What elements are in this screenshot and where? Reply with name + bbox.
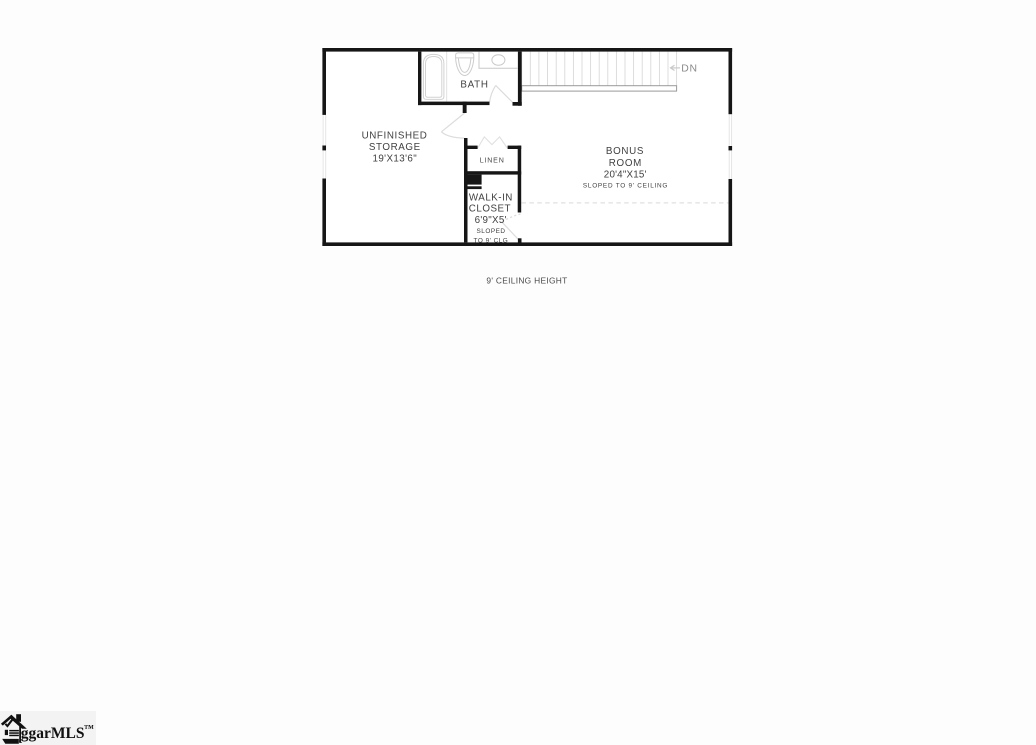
svg-text:WALK-IN: WALK-IN bbox=[469, 192, 513, 203]
svg-text:TO 9' CLG: TO 9' CLG bbox=[474, 237, 509, 244]
svg-text:BONUS: BONUS bbox=[606, 146, 644, 157]
svg-text:LINEN: LINEN bbox=[480, 156, 505, 164]
svg-text:CLOSET: CLOSET bbox=[469, 204, 511, 215]
svg-text:ggarMLS: ggarMLS bbox=[21, 725, 85, 742]
svg-text:DN: DN bbox=[681, 64, 697, 75]
svg-text:SLOPED TO 9' CEILING: SLOPED TO 9' CEILING bbox=[583, 183, 668, 190]
svg-text:6'9"X5': 6'9"X5' bbox=[475, 215, 507, 226]
svg-text:19'X13'6": 19'X13'6" bbox=[372, 153, 417, 164]
svg-text:SLOPED: SLOPED bbox=[477, 228, 506, 235]
svg-text:20'4"X15': 20'4"X15' bbox=[604, 170, 647, 181]
svg-text:STORAGE: STORAGE bbox=[369, 142, 421, 153]
svg-text:9' CEILING HEIGHT: 9' CEILING HEIGHT bbox=[486, 276, 567, 286]
svg-text:BATH: BATH bbox=[460, 79, 488, 90]
svg-text:UNFINISHED: UNFINISHED bbox=[362, 131, 428, 142]
svg-text:™: ™ bbox=[84, 724, 94, 735]
svg-text:ROOM: ROOM bbox=[609, 158, 642, 169]
